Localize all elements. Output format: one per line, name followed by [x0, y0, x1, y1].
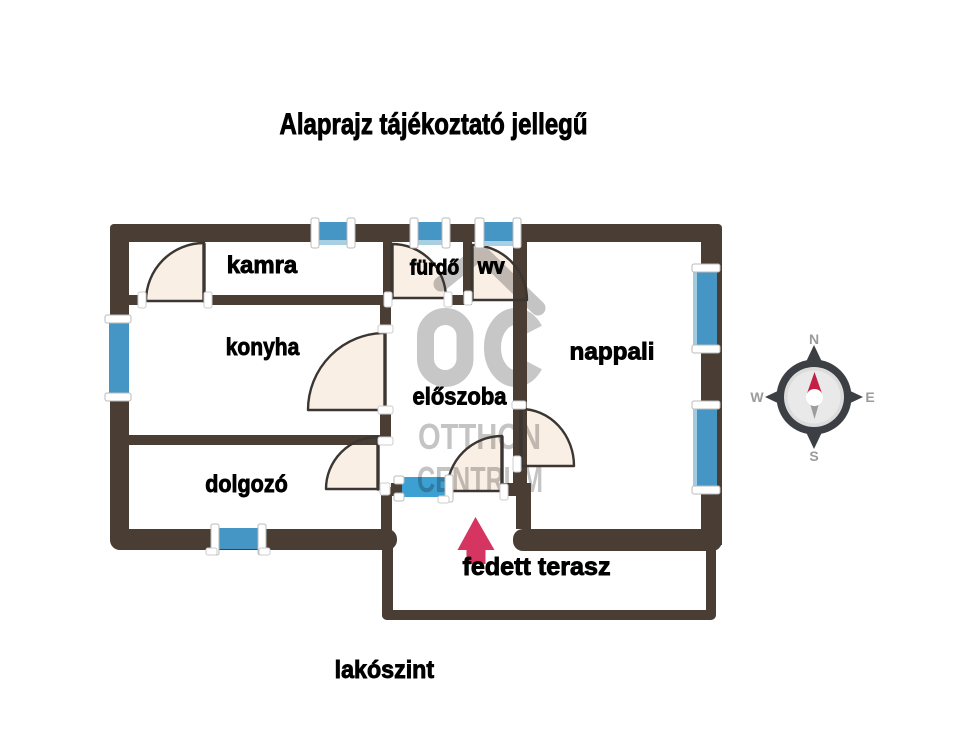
svg-text:konyha: konyha — [226, 334, 300, 361]
svg-text:W: W — [750, 389, 764, 405]
svg-text:előszoba: előszoba — [413, 384, 508, 411]
svg-text:dolgozó: dolgozó — [205, 471, 288, 498]
svg-text:wv: wv — [477, 254, 506, 279]
svg-text:S: S — [809, 448, 818, 464]
svg-text:nappali: nappali — [570, 339, 655, 366]
svg-text:E: E — [865, 389, 874, 405]
svg-text:Alaprajz tájékoztató jellegű: Alaprajz tájékoztató jellegű — [280, 108, 588, 141]
svg-text:N: N — [809, 331, 819, 347]
svg-text:fürdő: fürdő — [410, 257, 460, 280]
svg-text:kamra: kamra — [227, 252, 298, 279]
svg-text:lakószint: lakószint — [335, 656, 435, 684]
svg-text:fedett terasz: fedett terasz — [463, 553, 611, 581]
